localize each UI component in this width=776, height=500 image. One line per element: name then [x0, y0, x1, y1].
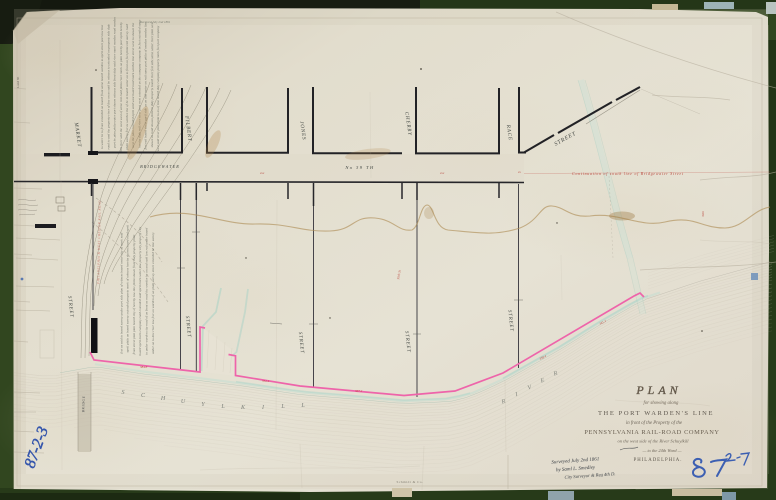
- svg-text:BRIDGE: BRIDGE: [81, 395, 86, 412]
- svg-text:Land 66: Land 66: [16, 76, 20, 88]
- svg-text:352.4: 352.4: [262, 379, 270, 383]
- svg-text:xxx: xxx: [259, 171, 265, 175]
- svg-text:Continuation of south line: Continuation of south line of Bridgewate…: [572, 172, 684, 176]
- svg-text:L: L: [220, 404, 225, 410]
- svg-text:port be plan phila water port: port be plan phila water port shown witn…: [113, 17, 117, 149]
- svg-text:april phila on board survey ex: april phila on board survey extended pro…: [126, 225, 130, 353]
- svg-text:39th: 39th: [701, 211, 705, 217]
- svg-text:L: L: [300, 403, 305, 409]
- svg-text:xx: xx: [517, 170, 521, 174]
- svg-text:Schmidt & Co.: Schmidt & Co.: [397, 480, 424, 484]
- svg-text:U: U: [181, 399, 186, 405]
- svg-text:xxx: xxx: [439, 171, 445, 175]
- svg-text:west said river plan phila to: west said river plan phila to as of line…: [156, 25, 160, 151]
- svg-text:367.2: 367.2: [355, 389, 363, 393]
- svg-text:front street plan plan board c: front street plan plan board city of her…: [132, 234, 136, 354]
- svg-text:— to the 24th Ward —: — to the 24th Ward —: [641, 448, 681, 453]
- svg-text:S: S: [122, 390, 125, 396]
- svg-text:PLAN: PLAN: [635, 383, 681, 397]
- svg-text:BRIDGEWATER: BRIDGEWATER: [140, 164, 180, 169]
- svg-text:384.6: 384.6: [140, 365, 148, 369]
- svg-text:on the west side of the River: on the west side of the River Schuylkill: [617, 439, 689, 444]
- svg-text:board april mark company road: board april mark company road extended s…: [138, 226, 142, 355]
- svg-text:road to and the property river: road to and the property river of line o…: [106, 24, 110, 150]
- svg-text:rail river said the west west: rail river said the west west of same ra…: [119, 22, 123, 152]
- svg-text:L: L: [280, 404, 285, 410]
- svg-text:PENNSYLVANIA RAIL-ROAD COMPANY: PENNSYLVANIA RAIL-ROAD COMPANY: [584, 429, 719, 436]
- svg-text:under on to line river low fee: under on to line river low feet on warde…: [151, 232, 155, 354]
- svg-text:PHILADELPHIA.: PHILADELPHIA.: [634, 458, 683, 463]
- svg-text:H: H: [160, 396, 166, 402]
- svg-text:phila survey feet as warden th: phila survey feet as warden the of be in…: [125, 24, 129, 151]
- svg-text:THE PORT WARDEN'S LINE: THE PORT WARDEN'S LINE: [598, 410, 714, 417]
- svg-text:No 39 TH: No 39 TH: [344, 165, 374, 170]
- svg-text:to water be to front extended: to water be to front extended on board f…: [100, 24, 104, 149]
- svg-text:to under warden city road of o: to under warden city road of on front as…: [145, 228, 149, 355]
- svg-text:in front of the Property of th: in front of the Property of the: [626, 421, 683, 426]
- svg-text:for showing along: for showing along: [644, 401, 680, 406]
- svg-text:feet as said to board survey u: feet as said to board survey under port …: [119, 232, 123, 353]
